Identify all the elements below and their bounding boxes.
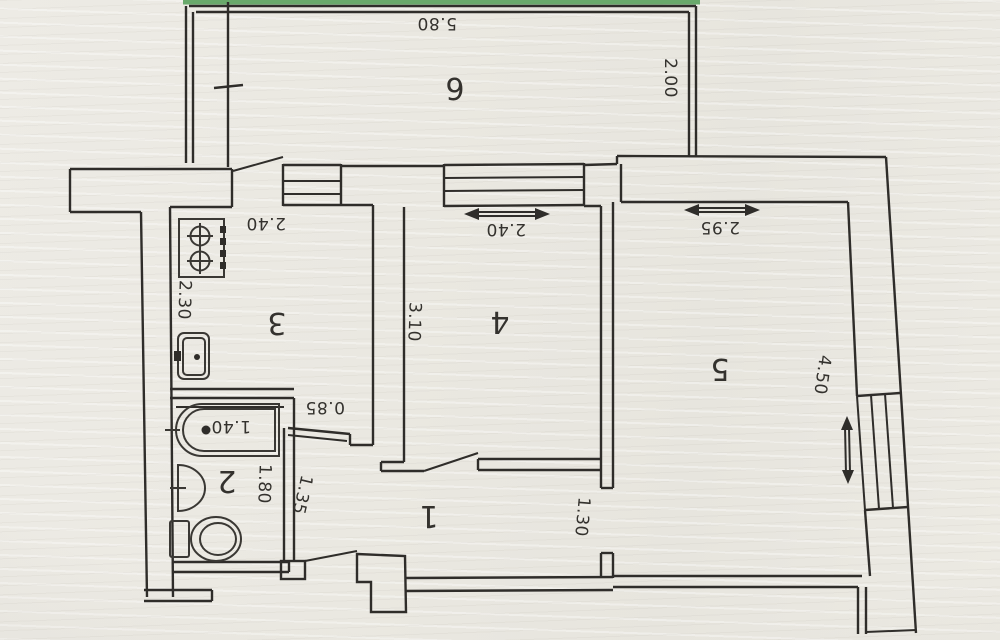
dim-arrow-room5-window-side: [841, 416, 854, 484]
room-5-label: 5: [710, 351, 729, 386]
kitchen-sink: [174, 333, 209, 379]
dim-kitchen-window: 2.40: [246, 213, 286, 233]
kitchen-window: [283, 164, 341, 206]
entry-door-leaf: [305, 551, 357, 561]
room5-window: [857, 393, 908, 510]
dim-room5-door: 1.30: [570, 496, 593, 537]
floor-plan: 5.80 6 2.00 2.40 2.30 3 2.40 3.10 4 2.95…: [0, 0, 1000, 640]
entry-pillar: [357, 554, 406, 612]
dim-bathroom-depth: 1.80: [253, 464, 274, 505]
east-wall: [848, 157, 916, 633]
south-wall: [613, 576, 916, 634]
dim-room4-window: 2.40: [486, 219, 526, 239]
floor-plan-photo: 5.80 6 2.00 2.40 2.30 3 2.40 3.10 4 2.95…: [0, 0, 1000, 640]
balcony-door-leaf: [233, 157, 283, 171]
room4-window: [444, 163, 584, 207]
dim-niche-width: 0.85: [305, 397, 345, 417]
dim-balcony-width: 5.80: [417, 13, 457, 33]
stove: [179, 219, 226, 277]
green-edge-strip: [183, 0, 700, 5]
room-6-label: 6: [445, 70, 464, 105]
room-3-label: 3: [267, 305, 286, 340]
room-1-label: 1: [419, 498, 438, 533]
entry-jamb: [281, 561, 305, 579]
dim-arrow-room5-window-top: [684, 204, 760, 216]
washbasin: [170, 465, 205, 511]
toilet: [170, 517, 241, 561]
dim-bathtub-length: 1.40: [211, 416, 251, 436]
dim-room4-width: 3.10: [403, 302, 424, 343]
room4-door-leaf: [424, 453, 478, 471]
room4-room5-wall: [601, 202, 613, 578]
dim-room5-window: 2.95: [700, 217, 740, 237]
room-4-label: 4: [490, 304, 509, 339]
dim-hall-width: 1.35: [288, 473, 316, 516]
dim-arrow-room4-window: [464, 208, 550, 220]
dim-kitchen-width: 2.30: [173, 280, 194, 321]
room-2-label: 2: [217, 463, 236, 498]
north-wall: [70, 156, 886, 212]
hallway-walls: [281, 453, 613, 612]
dim-balcony-depth: 2.00: [660, 58, 680, 98]
kitchen-room4-wall: [373, 205, 404, 462]
dim-room5-depth: 4.50: [809, 354, 834, 396]
